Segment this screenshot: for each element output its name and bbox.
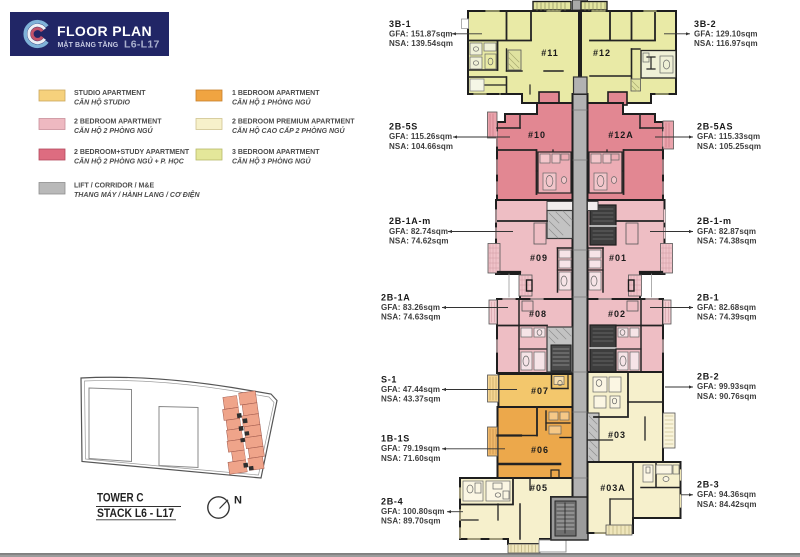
svg-text:CĂN HỘ CAO CẤP 2 PHÒNG NGỦ: CĂN HỘ CAO CẤP 2 PHÒNG NGỦ <box>232 126 345 135</box>
svg-text:GFA: 151.87sqm: GFA: 151.87sqm <box>389 29 453 38</box>
svg-text:S-1: S-1 <box>381 374 397 384</box>
svg-text:1 BEDROOM APARTMENT: 1 BEDROOM APARTMENT <box>232 90 320 97</box>
svg-text:2 BEDROOM+STUDY APARTMENT: 2 BEDROOM+STUDY APARTMENT <box>74 149 190 156</box>
svg-text:#09: #09 <box>530 253 548 263</box>
svg-text:NSA: 90.76sqm: NSA: 90.76sqm <box>697 392 757 401</box>
svg-text:CĂN HỘ 2 PHÒNG NGỦ + P. HỌC: CĂN HỘ 2 PHÒNG NGỦ + P. HỌC <box>74 157 185 166</box>
svg-text:#12A: #12A <box>608 130 634 140</box>
svg-text:NSA: 84.42sqm: NSA: 84.42sqm <box>697 500 757 509</box>
svg-text:3B-2: 3B-2 <box>694 19 716 29</box>
svg-text:NSA: 74.63sqm: NSA: 74.63sqm <box>381 313 441 322</box>
svg-text:NSA: 116.97sqm: NSA: 116.97sqm <box>694 39 758 48</box>
svg-text:2B-1A: 2B-1A <box>381 292 411 302</box>
svg-text:3B-1: 3B-1 <box>389 19 411 29</box>
svg-text:NSA: 74.62sqm: NSA: 74.62sqm <box>389 237 449 246</box>
svg-text:2B-3: 2B-3 <box>697 480 719 490</box>
svg-text:GFA: 82.74sqm: GFA: 82.74sqm <box>389 227 448 236</box>
svg-text:2B-2: 2B-2 <box>697 372 719 382</box>
svg-text:2B-1-m: 2B-1-m <box>697 216 732 226</box>
svg-text:THANG MÁY / HÀNH LANG / CƠ ĐIỆ: THANG MÁY / HÀNH LANG / CƠ ĐIỆN <box>74 190 200 199</box>
svg-text:GFA: 83.26sqm: GFA: 83.26sqm <box>381 303 440 312</box>
svg-text:#07: #07 <box>531 386 549 396</box>
svg-text:GFA: 115.26sqm: GFA: 115.26sqm <box>389 132 452 141</box>
svg-text:NSA: 139.54sqm: NSA: 139.54sqm <box>389 39 453 48</box>
svg-text:CĂN HỘ 1 PHÒNG NGỦ: CĂN HỘ 1 PHÒNG NGỦ <box>232 98 312 107</box>
svg-text:NSA: 104.66sqm: NSA: 104.66sqm <box>389 142 453 151</box>
svg-text:#03A: #03A <box>600 483 626 493</box>
svg-text:STUDIO APARTMENT: STUDIO APARTMENT <box>74 90 146 97</box>
svg-text:GFA: 100.80sqm: GFA: 100.80sqm <box>381 507 445 516</box>
svg-text:LIFT / CORRIDOR / M&E: LIFT / CORRIDOR / M&E <box>74 183 154 190</box>
svg-text:GFA: 79.19sqm: GFA: 79.19sqm <box>381 444 440 453</box>
svg-text:FLOOR PLAN: FLOOR PLAN <box>57 23 152 39</box>
svg-text:1B-1S: 1B-1S <box>381 434 410 444</box>
svg-text:GFA: 82.87sqm: GFA: 82.87sqm <box>697 227 756 236</box>
svg-text:#12: #12 <box>593 48 611 58</box>
svg-text:#01: #01 <box>609 253 627 263</box>
svg-text:NSA: 74.38sqm: NSA: 74.38sqm <box>697 237 757 246</box>
svg-text:2B-1A-m: 2B-1A-m <box>389 216 431 226</box>
svg-text:GFA: 115.33sqm: GFA: 115.33sqm <box>697 132 760 141</box>
svg-text:CĂN HỘ 2 PHÒNG NGỦ: CĂN HỘ 2 PHÒNG NGỦ <box>74 126 154 135</box>
svg-text:GFA: 82.68sqm: GFA: 82.68sqm <box>697 303 756 312</box>
svg-text:#02: #02 <box>608 309 626 319</box>
svg-text:#11: #11 <box>541 48 559 58</box>
svg-text:NSA: 105.25sqm: NSA: 105.25sqm <box>697 142 761 151</box>
svg-text:N: N <box>234 495 242 507</box>
svg-text:2 BEDROOM PREMIUM APARTMENT: 2 BEDROOM PREMIUM APARTMENT <box>232 119 355 126</box>
svg-text:3 BEDROOM APARTMENT: 3 BEDROOM APARTMENT <box>232 149 320 156</box>
svg-text:2B-1: 2B-1 <box>697 292 719 302</box>
svg-text:#08: #08 <box>529 309 547 319</box>
svg-text:NSA: 71.60sqm: NSA: 71.60sqm <box>381 454 441 463</box>
svg-text:GFA: 99.93sqm: GFA: 99.93sqm <box>697 382 756 391</box>
svg-text:NSA: 74.39sqm: NSA: 74.39sqm <box>697 313 757 322</box>
svg-text:NSA: 89.70sqm: NSA: 89.70sqm <box>381 517 441 526</box>
svg-text:CĂN HỘ 3 PHÒNG NGỦ: CĂN HỘ 3 PHÒNG NGỦ <box>232 157 312 166</box>
svg-text:GFA: 94.36sqm: GFA: 94.36sqm <box>697 490 756 499</box>
svg-text:GFA: 129.10sqm: GFA: 129.10sqm <box>694 29 758 38</box>
svg-text:#06: #06 <box>531 445 549 455</box>
svg-text:2B-4: 2B-4 <box>381 496 403 506</box>
svg-text:2B-5S: 2B-5S <box>389 122 418 132</box>
svg-text:L6-L17: L6-L17 <box>124 39 160 51</box>
svg-text:#10: #10 <box>528 130 546 140</box>
svg-text:GFA: 47.44sqm: GFA: 47.44sqm <box>381 385 440 394</box>
svg-text:STACK L6 - L17: STACK L6 - L17 <box>97 508 174 520</box>
svg-text:TOWER C: TOWER C <box>97 493 144 505</box>
svg-text:#05: #05 <box>530 483 548 493</box>
svg-text:NSA: 43.37sqm: NSA: 43.37sqm <box>381 395 441 404</box>
svg-text:#03: #03 <box>608 430 626 440</box>
svg-text:CĂN HỘ STUDIO: CĂN HỘ STUDIO <box>74 98 131 107</box>
svg-text:2 BEDROOM APARTMENT: 2 BEDROOM APARTMENT <box>74 119 162 126</box>
svg-text:2B-5AS: 2B-5AS <box>697 122 733 132</box>
